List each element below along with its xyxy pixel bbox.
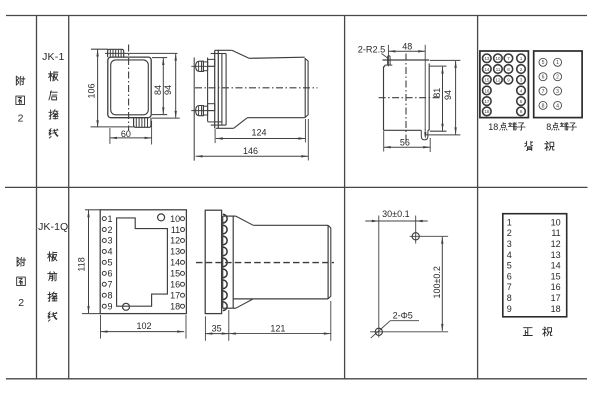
svg-text:3: 3 — [507, 239, 512, 249]
svg-text:81: 81 — [432, 88, 442, 98]
svg-text:35: 35 — [212, 324, 222, 334]
svg-text:13: 13 — [170, 247, 180, 257]
svg-text:13: 13 — [484, 56, 489, 62]
svg-text:94: 94 — [163, 85, 173, 95]
svg-text:2-Φ5: 2-Φ5 — [393, 310, 413, 320]
svg-text:102: 102 — [136, 321, 151, 331]
svg-text:1: 1 — [507, 217, 512, 227]
svg-text:48: 48 — [402, 42, 412, 52]
svg-text:2: 2 — [556, 75, 559, 81]
svg-text:2: 2 — [18, 297, 24, 309]
svg-text:100±0.2: 100±0.2 — [432, 266, 442, 298]
svg-text:9: 9 — [108, 301, 113, 311]
svg-text:7: 7 — [507, 282, 512, 292]
svg-text:106: 106 — [87, 83, 97, 98]
svg-text:1: 1 — [108, 214, 113, 224]
svg-text:84: 84 — [153, 85, 163, 95]
svg-text:7: 7 — [108, 280, 113, 290]
svg-text:60: 60 — [121, 129, 131, 139]
svg-text:18: 18 — [484, 109, 489, 115]
svg-text:17: 17 — [170, 290, 180, 300]
svg-text:56: 56 — [400, 137, 410, 147]
svg-text:10: 10 — [170, 214, 180, 224]
svg-text:5: 5 — [507, 261, 512, 271]
svg-text:16: 16 — [170, 280, 180, 290]
svg-text:10: 10 — [495, 56, 500, 62]
svg-text:2-R2.5: 2-R2.5 — [358, 44, 386, 54]
svg-text:2: 2 — [507, 228, 512, 238]
svg-text:118: 118 — [76, 257, 86, 271]
svg-text:14: 14 — [170, 258, 180, 268]
svg-text:8: 8 — [507, 293, 512, 303]
svg-text:16: 16 — [551, 282, 561, 292]
svg-text:4: 4 — [556, 103, 559, 109]
svg-text:6: 6 — [542, 75, 545, 81]
svg-text:15: 15 — [551, 271, 561, 281]
svg-text:8: 8 — [546, 122, 551, 132]
svg-text:3: 3 — [556, 89, 559, 95]
svg-text:9: 9 — [507, 304, 512, 314]
svg-text:17: 17 — [484, 99, 489, 105]
svg-text:15: 15 — [484, 78, 489, 84]
svg-text:5: 5 — [542, 60, 545, 66]
svg-text:11: 11 — [171, 225, 180, 235]
svg-text:146: 146 — [243, 146, 258, 156]
svg-text:18: 18 — [551, 304, 561, 314]
svg-text:12: 12 — [551, 239, 561, 249]
svg-text:JK-1Q: JK-1Q — [38, 221, 68, 233]
svg-text:121: 121 — [270, 324, 285, 334]
svg-text:6: 6 — [507, 271, 512, 281]
svg-text:13: 13 — [551, 250, 561, 260]
svg-text:2: 2 — [108, 225, 113, 235]
svg-text:3: 3 — [108, 236, 113, 246]
svg-text:4: 4 — [108, 247, 113, 257]
svg-text:6: 6 — [108, 269, 113, 279]
svg-text:14: 14 — [551, 261, 561, 271]
svg-text:2: 2 — [18, 113, 24, 125]
svg-text:17: 17 — [551, 293, 561, 303]
svg-text:8: 8 — [542, 103, 545, 109]
svg-text:18: 18 — [488, 122, 498, 132]
svg-text:11: 11 — [551, 228, 560, 238]
svg-text:JK-1: JK-1 — [42, 51, 64, 63]
svg-text:7: 7 — [542, 89, 545, 95]
svg-text:5: 5 — [108, 258, 113, 268]
svg-text:12: 12 — [170, 236, 180, 246]
svg-text:15: 15 — [170, 269, 180, 279]
svg-text:10: 10 — [551, 217, 561, 227]
svg-text:4: 4 — [507, 250, 512, 260]
svg-text:18: 18 — [170, 301, 180, 311]
svg-text:94: 94 — [443, 90, 453, 100]
svg-text:124: 124 — [251, 128, 266, 138]
svg-text:30±0.1: 30±0.1 — [382, 209, 409, 219]
svg-text:12: 12 — [495, 78, 500, 84]
svg-text:1: 1 — [556, 60, 559, 66]
svg-text:11: 11 — [496, 67, 501, 73]
svg-text:14: 14 — [484, 67, 489, 73]
svg-text:8: 8 — [108, 290, 113, 300]
svg-text:16: 16 — [484, 88, 489, 94]
